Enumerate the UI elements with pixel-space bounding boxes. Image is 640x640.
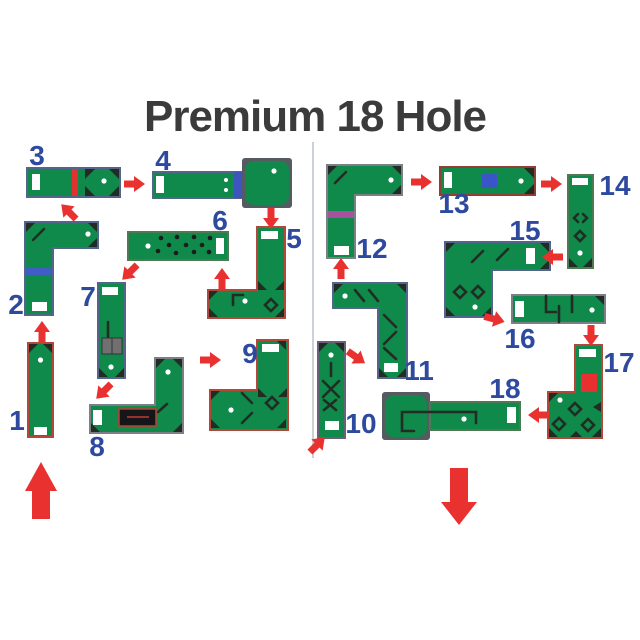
hole-cup [472, 304, 477, 309]
red-bar-obstacle [72, 169, 78, 196]
tee-pad [325, 421, 339, 430]
hole-cup [589, 307, 594, 312]
page-title: Premium 18 Hole [144, 92, 486, 141]
hole-7: 7 [80, 281, 125, 378]
flow-arrow-16-17 [583, 325, 599, 346]
hole-4: 4 [153, 145, 292, 208]
hole-12-label: 12 [356, 233, 387, 264]
finish-direction-arrow [441, 468, 477, 525]
bump-dot [224, 178, 228, 182]
hole-13-label: 13 [438, 188, 469, 219]
tee-pad [507, 407, 516, 423]
flow-arrow-7-8 [91, 378, 117, 404]
hole-3-label: 3 [29, 140, 45, 171]
hole-9: 9 [210, 338, 288, 430]
hole-cup [108, 364, 113, 369]
hole-cup [145, 243, 150, 248]
hole-cup [388, 177, 393, 182]
flow-arrow-10-11 [343, 345, 369, 370]
hole-cup [242, 298, 247, 303]
tee-pad [384, 363, 398, 372]
hole-1: 1 [9, 343, 53, 437]
tee-pad [444, 172, 452, 188]
hole-16-label: 16 [504, 323, 535, 354]
hole-17: 17 [548, 345, 635, 438]
blue-band-obstacle [234, 172, 243, 198]
hole-15-label: 15 [509, 215, 540, 246]
blue-box-obstacle [482, 174, 497, 188]
purple-bar-obstacle [328, 211, 354, 218]
hole-8-label: 8 [89, 431, 105, 462]
hole-10: 10 [318, 342, 377, 439]
tee-pad [156, 176, 164, 193]
tee-pad [526, 248, 535, 264]
hole-cup [461, 416, 466, 421]
tee-pad [32, 174, 40, 190]
hole-7-label: 7 [80, 281, 96, 312]
hole-2-label: 2 [8, 289, 24, 320]
hole-cup [342, 293, 347, 298]
tee-pad [102, 287, 118, 295]
tee-pad [334, 246, 349, 255]
flow-arrow-3-4 [124, 176, 145, 192]
hole-14: 14 [568, 170, 631, 268]
hole-7-piece [98, 283, 125, 378]
hole-18: 18 [382, 373, 521, 440]
tee-pad [261, 231, 278, 239]
hole-5-label: 5 [286, 223, 302, 254]
hole-11: 11 [333, 283, 434, 386]
flow-arrow-8-9 [200, 352, 221, 368]
hole-3: 3 [27, 140, 120, 197]
hole-14-label: 14 [599, 170, 631, 201]
flow-arrow-11-12 [333, 258, 349, 279]
hole-cup [38, 357, 43, 362]
hole-10-label: 10 [345, 408, 376, 439]
tee-pad [262, 344, 279, 352]
flow-arrow-1-2 [34, 321, 50, 342]
flow-arrow-17-18 [528, 407, 549, 423]
hole-cup [165, 369, 170, 374]
tee-pad [572, 178, 588, 185]
hole-11-label: 11 [404, 355, 434, 386]
hole-4-label: 4 [155, 145, 171, 176]
tee-pad [515, 301, 524, 317]
hole-cup [228, 407, 233, 412]
hole-cup [518, 178, 523, 183]
hole-cup [557, 397, 562, 402]
start-direction-arrow [25, 462, 57, 519]
course-layout-diagram: Premium 18 Hole 1 2 3 [0, 0, 640, 640]
hole-6-label: 6 [212, 205, 228, 236]
flow-arrow-13-14 [541, 176, 562, 192]
hole-cup [577, 250, 582, 255]
flow-arrow-6-7 [117, 259, 143, 285]
tee-pad [93, 410, 102, 425]
bump-dot [224, 188, 228, 192]
blue-bar-obstacle [26, 268, 52, 275]
hole-9-label: 9 [242, 338, 258, 369]
hole-cup [328, 352, 333, 357]
hole-13: 13 [438, 167, 535, 219]
red-box-obstacle [581, 374, 597, 392]
hole-12: 12 [327, 165, 402, 264]
gray-block-obstacle [112, 338, 122, 354]
tee-pad [32, 302, 47, 311]
flow-arrow-5-6 [214, 268, 230, 289]
hole-6: 6 [128, 205, 228, 260]
hole-cup [85, 231, 90, 236]
tee-pad [579, 349, 596, 357]
gray-block-obstacle [102, 338, 112, 354]
hole-1-piece [28, 343, 53, 437]
hole-18-label: 18 [489, 373, 520, 404]
tee-pad [34, 427, 47, 435]
hole-1-label: 1 [9, 405, 25, 436]
hole-cup [101, 178, 106, 183]
hole-17-label: 17 [603, 347, 634, 378]
flow-arrow-2-3 [56, 199, 82, 225]
flow-arrow-4-5 [263, 208, 279, 229]
square-green [245, 161, 289, 205]
tee-pad [216, 238, 224, 254]
flow-arrow-12-13 [411, 174, 432, 190]
hole-cup [271, 168, 276, 173]
